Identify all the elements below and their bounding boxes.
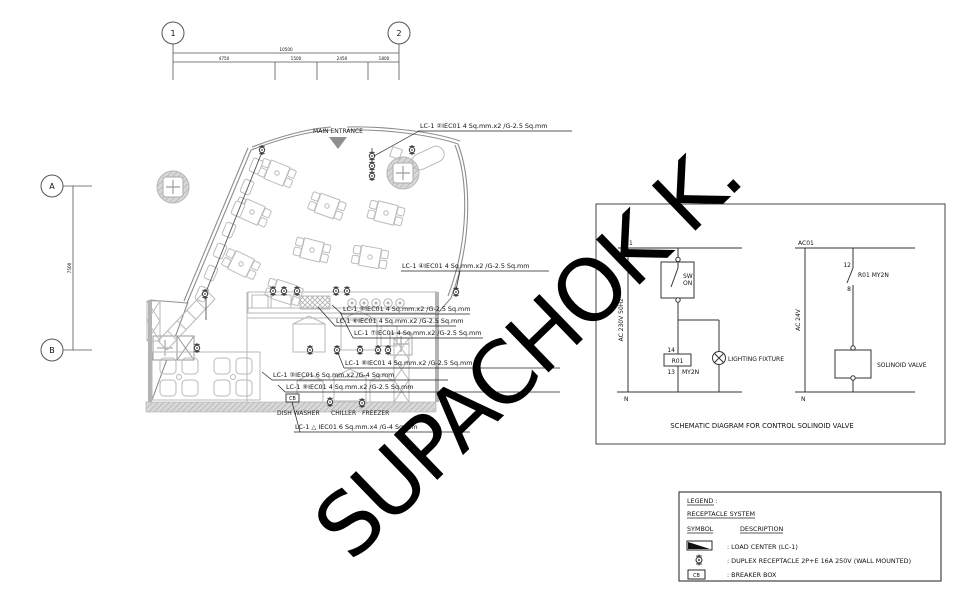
bus-label-ac01: AC01: [798, 240, 814, 247]
entrance-label: MAIN ENTRANCE: [313, 128, 363, 135]
load-center-symbol: [687, 541, 712, 550]
voltage-label-24: AC 24V: [795, 308, 802, 331]
annotation-9: LC-1 ⑨IEC01 4 Sq.mm.x2 /G-2.5 Sq.mm: [286, 383, 414, 391]
neutral-label: N: [624, 396, 629, 403]
dining-table: [293, 236, 332, 264]
grid-bubble-A: A: [49, 182, 55, 191]
annotation-triangle: LC-1 △ IEC01 6 Sq.mm.x4 /G-4 Sq.mm: [295, 423, 418, 431]
legend-title: LEGEND :: [687, 497, 717, 505]
dining-table: [351, 244, 389, 270]
annotation-6: LC-1 ⑥IEC01 4 Sq.mm.x2 /G-2.5 Sq.mm: [336, 317, 464, 325]
schematic-diagram: R01 N AC 230V 50Hz SW ON 14 R01 13 MY2N: [596, 204, 945, 444]
freezer-label: FREEZER: [362, 410, 389, 417]
dining-table: [307, 191, 347, 222]
dim-vertical: 7500: [67, 262, 72, 273]
duplex-receptacle-symbol: [696, 555, 702, 566]
grid-bubble-1: 1: [170, 29, 175, 38]
voltage-label-230: AC 230V 50Hz: [618, 299, 625, 342]
duplex-receptacle: [385, 345, 390, 355]
duplex-receptacle: [327, 397, 332, 407]
duplex-receptacle: [375, 345, 380, 355]
breaker-box: CB: [286, 394, 299, 402]
annotation-3: LC-1 ③IEC01 6 Sq.mm.x2 /G-4 Sq.mm: [273, 371, 394, 379]
relay-label: R01: [672, 358, 684, 365]
contact-pin-12: 12: [843, 262, 851, 269]
duplex-receptacle: [409, 145, 414, 155]
drawing-sheet: 1 2 10500 4750 1500 2450 1800 A B 7500: [0, 0, 960, 594]
breaker-symbol-text: CB: [693, 573, 700, 579]
grid-column-headers: 1 2 10500 4750 1500 2450 1800: [162, 22, 410, 80]
duplex-receptacle: [270, 286, 275, 296]
duplex-receptacle: [294, 286, 299, 296]
entrance-arrow: [329, 137, 347, 149]
duplex-receptacle: [259, 145, 264, 155]
duplex-receptacle: [194, 343, 199, 353]
schematic-border: [596, 204, 945, 444]
round-column: [387, 157, 419, 189]
dim-seg-4: 1800: [379, 56, 390, 61]
legend: LEGEND : RECEPTACLE SYSTEM SYMBOL DESCRI…: [679, 492, 941, 581]
duplex-receptacle: [307, 345, 312, 355]
switch-label-on: ON: [683, 280, 692, 287]
duplex-receptacle: [369, 161, 374, 171]
grid-row-headers: A B 7500: [41, 175, 92, 361]
round-column: [157, 171, 189, 203]
duplex-receptacle: [357, 345, 362, 355]
annotation-5: LC-1 ⑤IEC01 4 Sq.mm.x2 /G-2.5 Sq.mm: [343, 305, 471, 313]
duplex-receptacle: [334, 345, 339, 355]
contact-pin-8: 8: [847, 286, 851, 293]
lighting-fixture-label: LIGHTING FIXTURE: [728, 356, 784, 363]
dim-total: 10500: [279, 47, 293, 52]
annotation-4: LC-1 ④IEC01 4 Sq.mm.x2 /G-2.5 Sq.mm: [402, 262, 530, 270]
floor-plan: MAIN ENTRANCE: [146, 122, 572, 432]
grid-bubble-2: 2: [396, 29, 401, 38]
cad-drawing: 1 2 10500 4750 1500 2450 1800 A B 7500: [0, 0, 960, 594]
lighting-fixture-symbol: [713, 352, 726, 365]
neutral-label-right: N: [801, 396, 806, 403]
relay-pin-14: 14: [667, 347, 675, 354]
grill-equipment: [300, 296, 330, 309]
receptacles: [194, 145, 458, 408]
duplex-receptacle: [333, 286, 338, 296]
legend-desc-breaker: : BREAKER BOX: [727, 571, 777, 579]
relay-type: MY2N: [682, 369, 699, 376]
dining-table: [221, 247, 261, 280]
dim-seg-2: 1500: [291, 56, 302, 61]
dish-washer-label: DISH WASHER: [277, 410, 320, 417]
breaker-box-symbol: CB: [688, 570, 705, 579]
duplex-receptacle: [344, 286, 349, 296]
chiller-label: CHILLER: [331, 410, 356, 417]
relay-pin-13: 13: [667, 369, 675, 376]
duplex-receptacle: [369, 171, 374, 181]
legend-desc-load-center: : LOAD CENTER (LC-1): [727, 543, 798, 551]
contact-label: R01 MY2N: [858, 272, 889, 279]
legend-col-description: DESCRIPTION: [740, 525, 783, 533]
schematic-right-circuit: AC01 N AC 24V 12 R01 MY2N 8 SOLINOID VAL…: [795, 240, 927, 403]
schematic-left-circuit: R01 N AC 230V 50Hz SW ON 14 R01 13 MY2N: [617, 240, 784, 403]
solenoid-valve-symbol: [835, 346, 871, 380]
dining-table: [367, 199, 406, 227]
solenoid-valve-label: SOLINOID VALVE: [877, 362, 927, 369]
breaker-box-text: CB: [289, 396, 296, 402]
annotation-7: LC-1 ⑦IEC01 4 Sq.mm.x2 /G-2.5 Sq.mm: [354, 329, 482, 337]
duplex-receptacle: [281, 286, 286, 296]
legend-col-symbol: SYMBOL: [687, 525, 714, 533]
duplex-receptacle: [359, 398, 364, 408]
switch-label-sw: SW: [683, 273, 693, 280]
grid-bubble-B: B: [49, 346, 55, 355]
bus-label-r01: R01: [621, 240, 633, 247]
duplex-receptacle: [369, 151, 374, 161]
annotation-2: LC-1 ②IEC01 4 Sq.mm.x2 /G-2.5 Sq.mm: [420, 122, 548, 130]
dim-seg-1: 4750: [219, 56, 230, 61]
annotation-8: LC-1 ⑧IEC01 4 Sq.mm.x2 /G-2.5 Sq.mm: [345, 359, 473, 367]
legend-desc-duplex: : DUPLEX RECEPTACLE 2P+E 16A 250V (WALL …: [727, 557, 911, 565]
duplex-receptacle: [202, 289, 207, 299]
dim-seg-3: 2450: [337, 56, 348, 61]
schematic-title: SCHEMATIC DIAGRAM FOR CONTROL SOLINOID V…: [670, 422, 853, 430]
legend-system: RECEPTACLE SYSTEM: [687, 510, 755, 518]
legend-border: [679, 492, 941, 581]
